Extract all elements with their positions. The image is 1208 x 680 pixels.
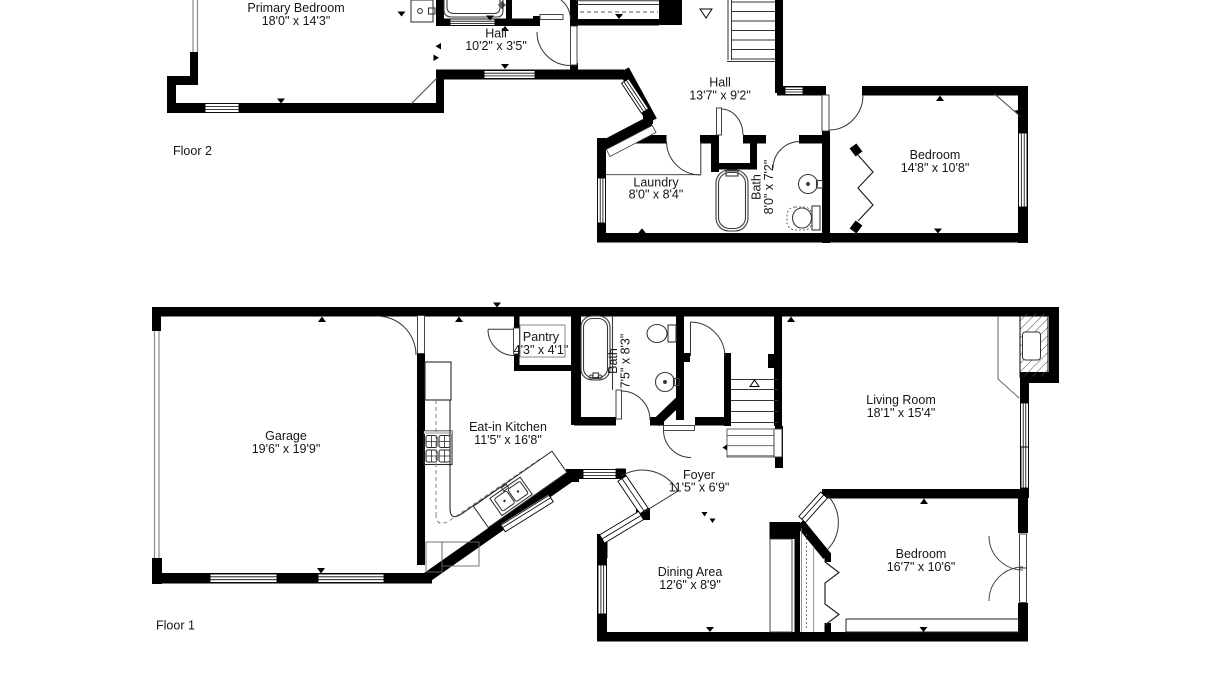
svg-text:19'6" x 19'9": 19'6" x 19'9" [252, 442, 321, 456]
svg-text:Hall: Hall [709, 76, 731, 90]
svg-text:Bedroom: Bedroom [896, 547, 947, 561]
svg-text:Floor 2: Floor 2 [173, 144, 212, 158]
svg-text:Pantry: Pantry [523, 330, 560, 344]
svg-text:8'0" x 8'4": 8'0" x 8'4" [629, 188, 684, 202]
svg-text:8'0" x 7'2": 8'0" x 7'2" [762, 160, 776, 215]
svg-text:18'0" x 14'3": 18'0" x 14'3" [262, 14, 331, 28]
svg-text:12'6" x 8'9": 12'6" x 8'9" [659, 578, 721, 592]
svg-text:11'5" x 6'9": 11'5" x 6'9" [669, 481, 730, 495]
svg-text:13'7" x 9'2": 13'7" x 9'2" [689, 89, 751, 103]
svg-text:7'5" x 8'3": 7'5" x 8'3" [619, 334, 633, 389]
svg-text:Floor 1: Floor 1 [156, 619, 195, 633]
svg-text:16'7" x 10'6": 16'7" x 10'6" [887, 560, 956, 574]
svg-text:Living Room: Living Room [866, 393, 935, 407]
svg-text:Primary Bedroom: Primary Bedroom [247, 1, 344, 15]
svg-text:14'8" x 10'8": 14'8" x 10'8" [901, 161, 970, 175]
svg-text:Eat-in Kitchen: Eat-in Kitchen [469, 420, 547, 434]
svg-text:Bedroom: Bedroom [910, 148, 961, 162]
svg-text:Dining Area: Dining Area [658, 565, 723, 579]
svg-text:4'3" x 4'1": 4'3" x 4'1" [514, 343, 569, 357]
svg-text:11'5" x 16'8": 11'5" x 16'8" [474, 433, 542, 447]
svg-text:10'2" x 3'5": 10'2" x 3'5" [465, 39, 527, 53]
svg-text:Garage: Garage [265, 429, 307, 443]
svg-text:18'1" x 15'4": 18'1" x 15'4" [867, 406, 936, 420]
